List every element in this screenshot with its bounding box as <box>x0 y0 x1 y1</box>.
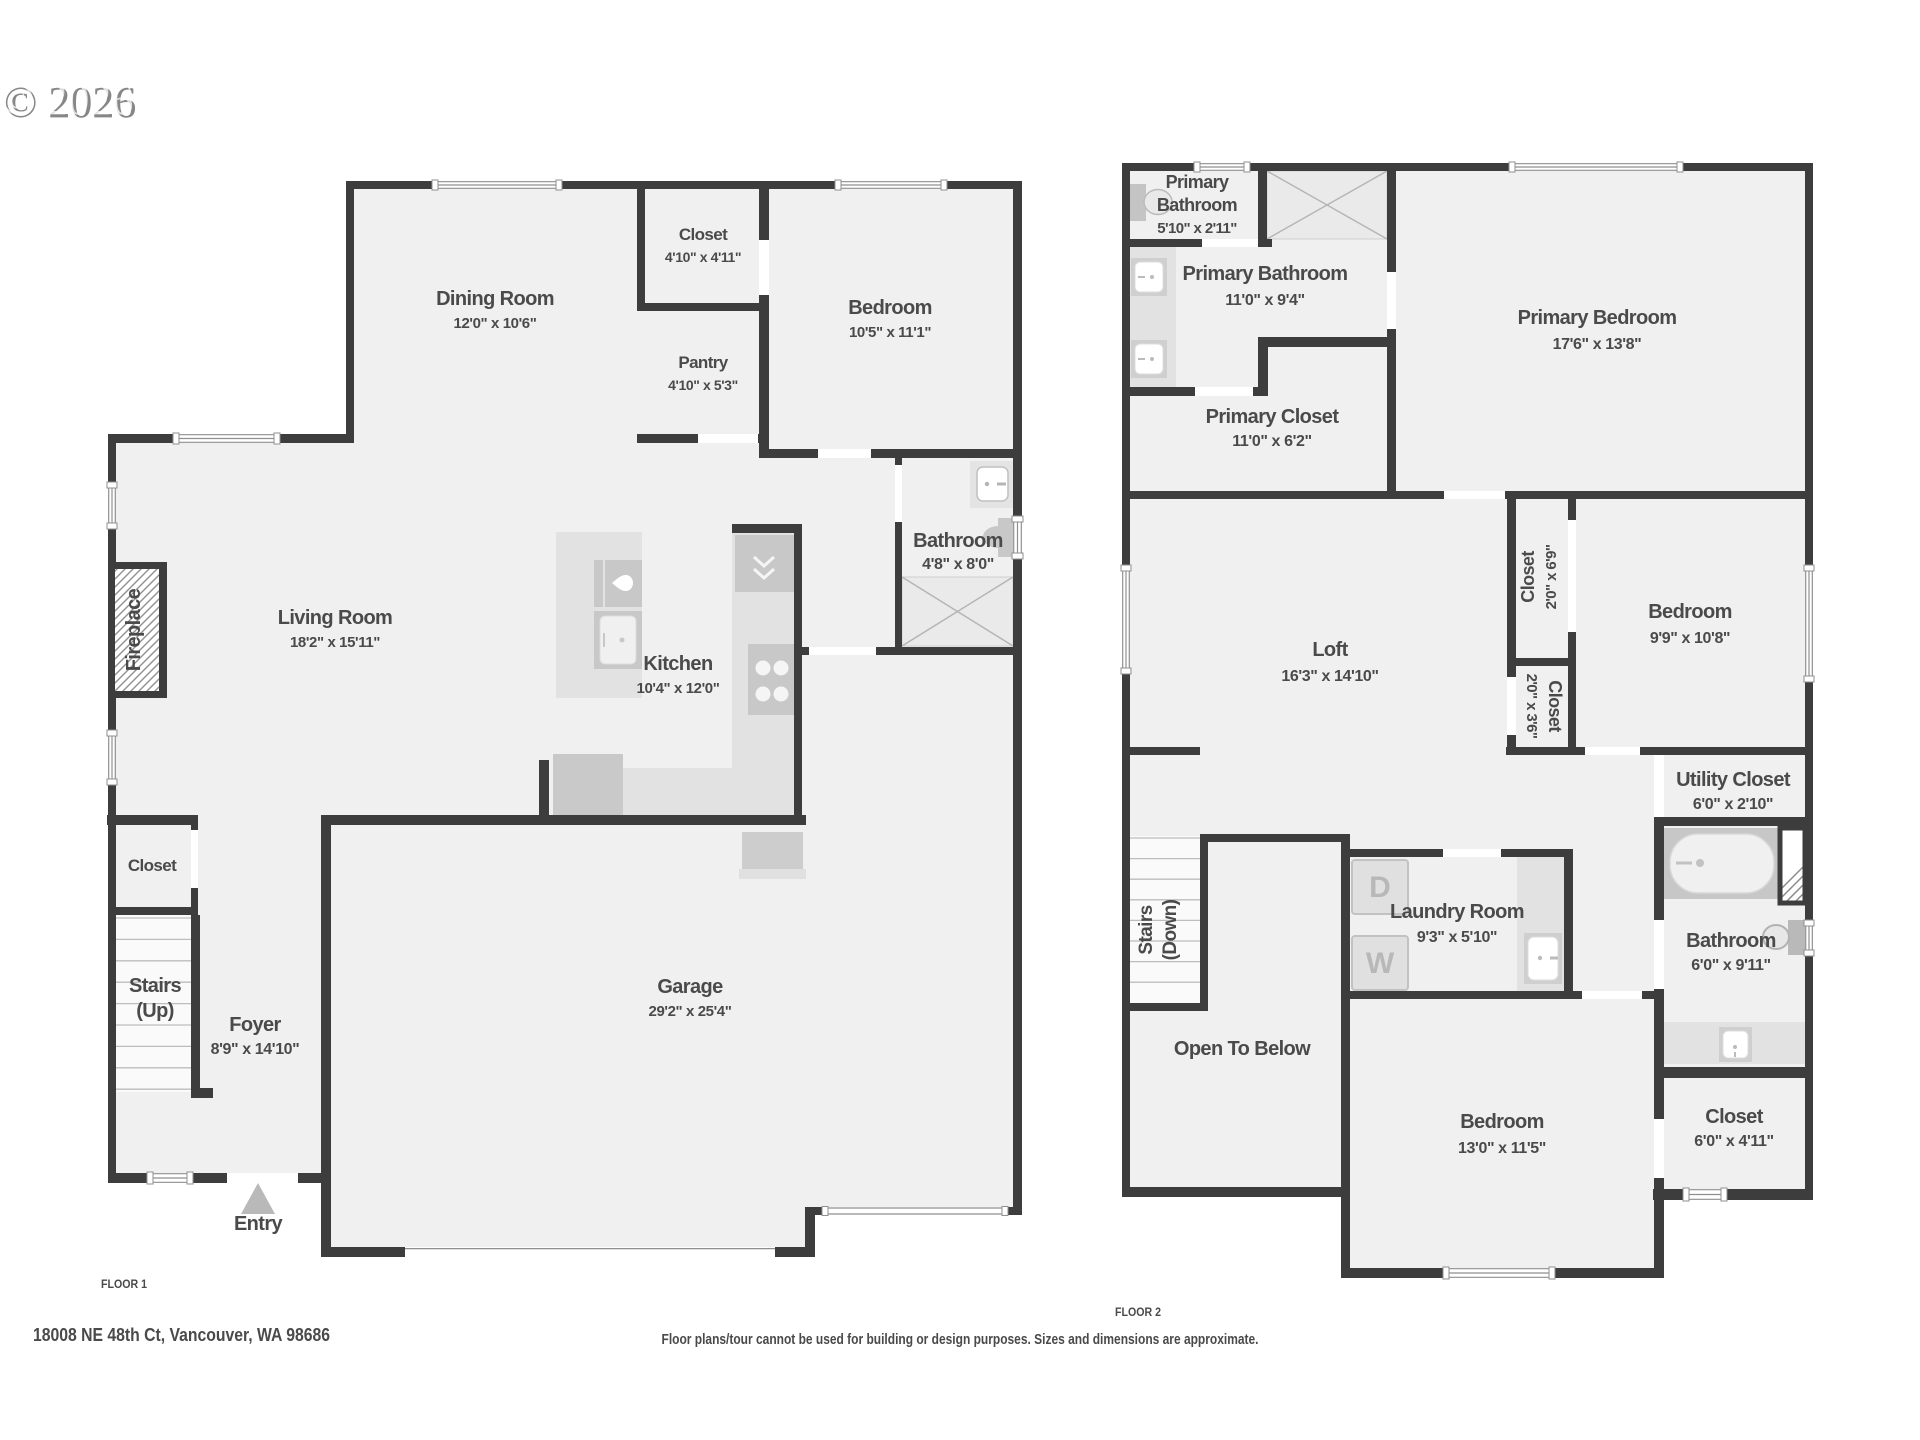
svg-text:8'9" x 14'10": 8'9" x 14'10" <box>211 1041 300 1058</box>
svg-text:FLOOR 1: FLOOR 1 <box>101 1277 147 1291</box>
svg-text:4'10" x 4'11": 4'10" x 4'11" <box>665 249 741 265</box>
svg-text:11'0" x 6'2": 11'0" x 6'2" <box>1232 433 1311 450</box>
svg-text:D: D <box>1369 871 1391 904</box>
svg-text:Garage: Garage <box>657 976 723 998</box>
svg-text:Stairs: Stairs <box>1136 905 1157 954</box>
svg-text:(Up): (Up) <box>136 1000 174 1022</box>
svg-text:FLOOR 2: FLOOR 2 <box>1115 1305 1161 1319</box>
svg-text:2'0" x 3'6": 2'0" x 3'6" <box>1523 674 1540 739</box>
svg-text:10'5" x 11'1": 10'5" x 11'1" <box>849 324 931 341</box>
svg-text:Bathroom: Bathroom <box>1686 930 1776 952</box>
svg-text:2'0" x 6'9": 2'0" x 6'9" <box>1543 544 1560 609</box>
svg-text:Utility Closet: Utility Closet <box>1676 769 1791 791</box>
svg-text:18008 NE 48th Ct, Vancouver, W: 18008 NE 48th Ct, Vancouver, WA 98686 <box>33 1325 330 1345</box>
svg-text:12'0" x 10'6": 12'0" x 10'6" <box>454 315 537 332</box>
svg-text:Floor plans/tour cannot be use: Floor plans/tour cannot be used for buil… <box>662 1331 1259 1348</box>
svg-text:(Down): (Down) <box>1160 899 1181 960</box>
svg-text:Closet: Closet <box>1545 680 1565 732</box>
svg-text:Primary Bedroom: Primary Bedroom <box>1518 307 1677 329</box>
svg-text:6'0" x 9'11": 6'0" x 9'11" <box>1691 957 1770 974</box>
svg-text:11'0" x 9'4": 11'0" x 9'4" <box>1225 292 1304 309</box>
svg-text:Bedroom: Bedroom <box>1648 601 1732 623</box>
svg-text:Bathroom: Bathroom <box>913 530 1003 552</box>
svg-text:17'6" x 13'8": 17'6" x 13'8" <box>1553 336 1642 353</box>
svg-text:6'0" x 4'11": 6'0" x 4'11" <box>1694 1133 1773 1150</box>
svg-text:Entry: Entry <box>234 1213 284 1235</box>
svg-text:Laundry Room: Laundry Room <box>1390 901 1524 923</box>
svg-text:10'4" x 12'0": 10'4" x 12'0" <box>637 680 720 697</box>
svg-text:Closet: Closet <box>679 225 728 244</box>
svg-text:9'9" x 10'8": 9'9" x 10'8" <box>1650 630 1730 647</box>
svg-text:Primary Bathroom: Primary Bathroom <box>1183 263 1348 285</box>
svg-text:Bedroom: Bedroom <box>1460 1111 1544 1133</box>
svg-text:13'0" x 11'5": 13'0" x 11'5" <box>1458 1140 1546 1157</box>
svg-text:Open To Below: Open To Below <box>1174 1038 1311 1060</box>
svg-text:4'8" x 8'0": 4'8" x 8'0" <box>922 556 994 573</box>
svg-text:Loft: Loft <box>1312 639 1348 661</box>
svg-text:6'0" x 2'10": 6'0" x 2'10" <box>1693 796 1773 813</box>
svg-text:Primary: Primary <box>1166 172 1229 192</box>
svg-text:Stairs: Stairs <box>129 975 181 997</box>
svg-text:Bedroom: Bedroom <box>848 297 932 319</box>
svg-text:18'2" x 15'11": 18'2" x 15'11" <box>290 634 380 651</box>
svg-text:16'3" x 14'10": 16'3" x 14'10" <box>1281 668 1378 685</box>
svg-text:Closet: Closet <box>1518 551 1538 603</box>
svg-text:Primary Closet: Primary Closet <box>1206 406 1340 428</box>
svg-text:© 2026: © 2026 <box>1 75 133 124</box>
svg-text:9'3" x 5'10": 9'3" x 5'10" <box>1417 929 1497 946</box>
svg-text:Kitchen: Kitchen <box>643 653 712 675</box>
svg-text:Closet: Closet <box>1705 1106 1763 1128</box>
svg-text:4'10" x 5'3": 4'10" x 5'3" <box>668 377 738 393</box>
svg-text:Fireplace: Fireplace <box>123 588 145 671</box>
svg-text:Pantry: Pantry <box>678 353 728 372</box>
svg-text:29'2" x 25'4": 29'2" x 25'4" <box>649 1003 732 1020</box>
svg-text:Living Room: Living Room <box>278 607 393 629</box>
svg-text:W: W <box>1366 947 1395 980</box>
svg-text:Foyer: Foyer <box>229 1014 281 1036</box>
svg-text:Dining Room: Dining Room <box>436 288 554 310</box>
svg-text:Closet: Closet <box>128 856 177 875</box>
svg-text:5'10" x 2'11": 5'10" x 2'11" <box>1157 220 1237 237</box>
svg-text:Bathroom: Bathroom <box>1157 195 1237 215</box>
